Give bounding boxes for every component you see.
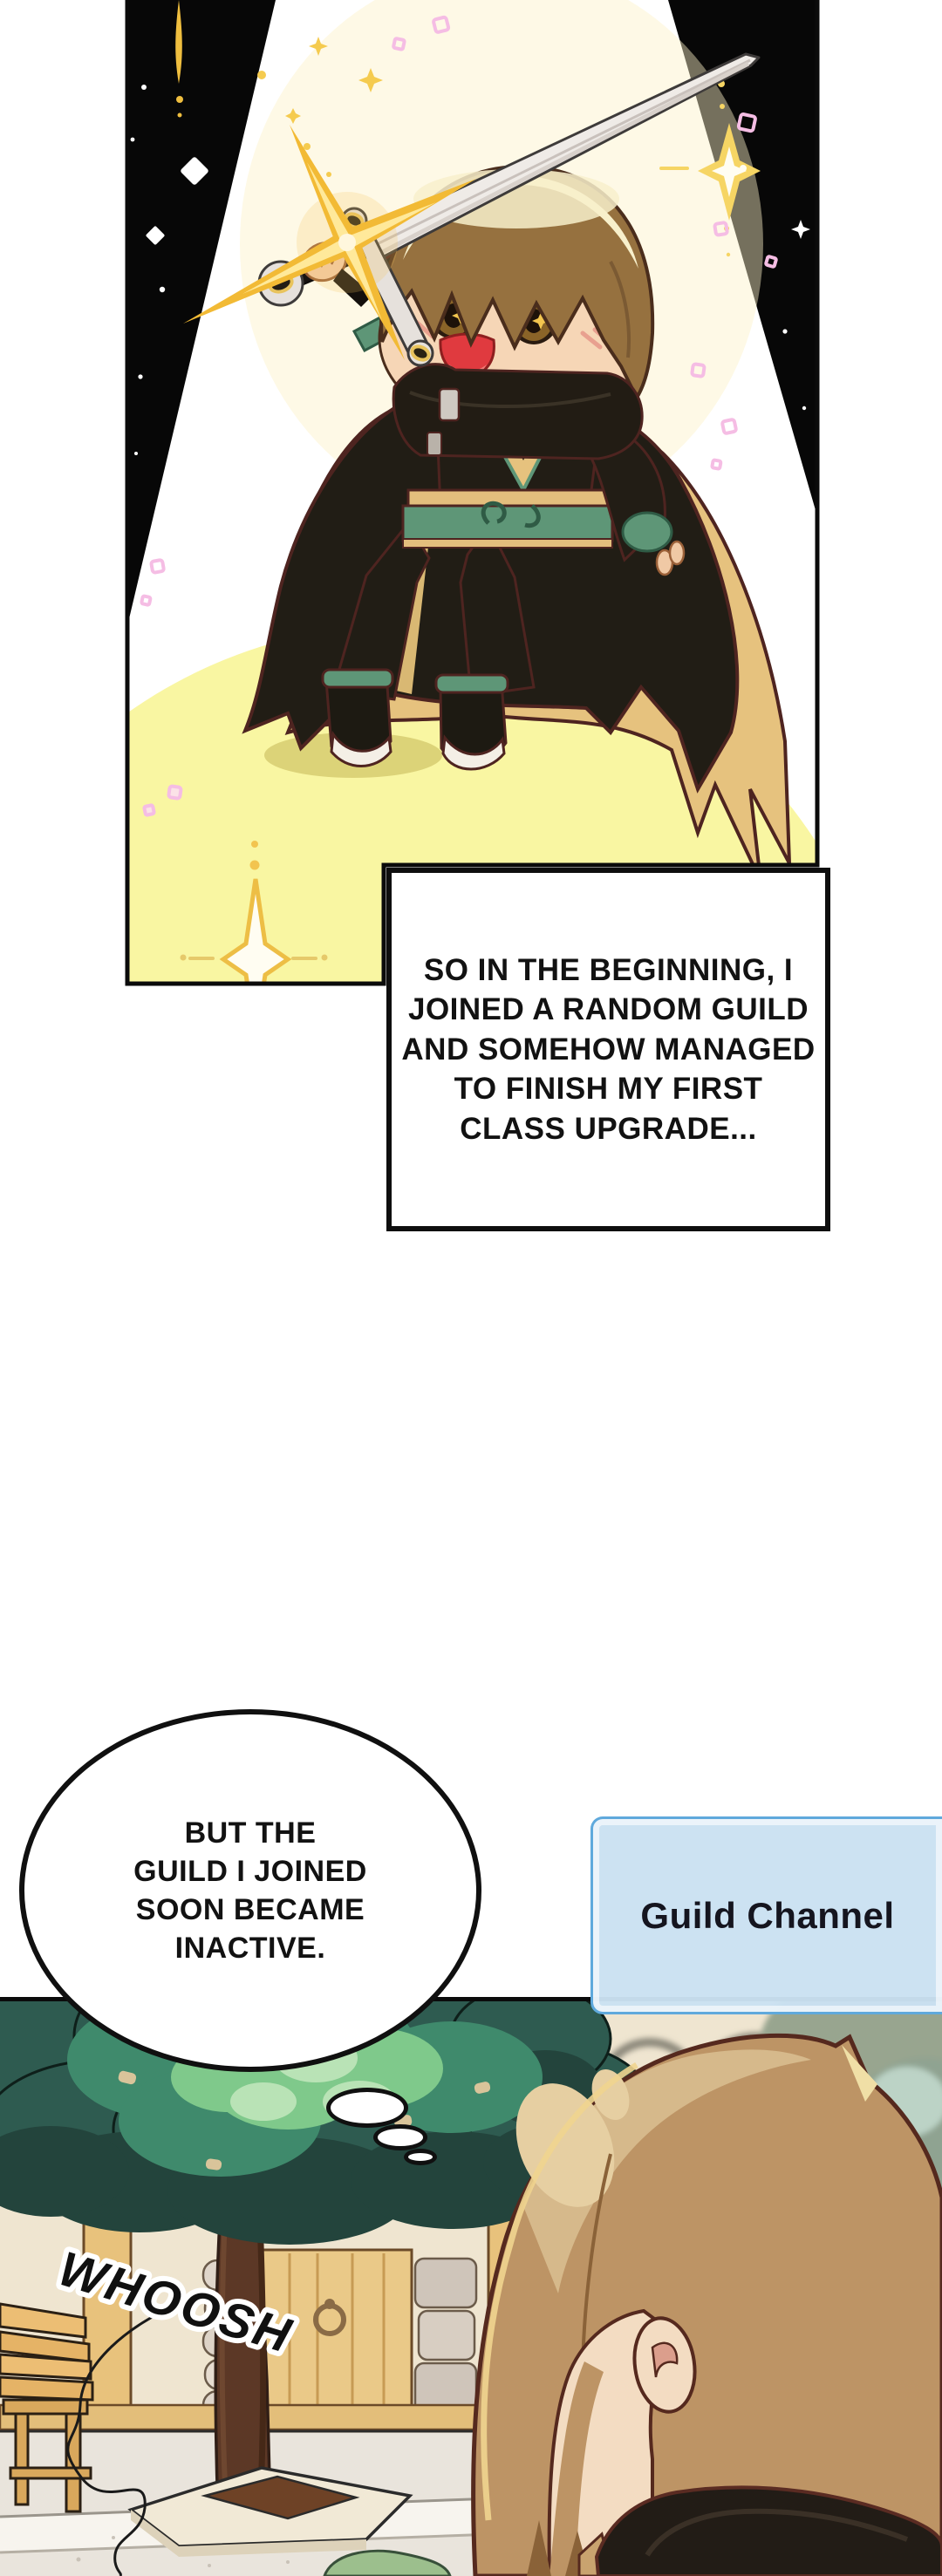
- narration-text: SO IN THE BEGINNING, I JOINED A RANDOM G…: [401, 951, 815, 1149]
- protagonist-back: [474, 2035, 942, 2576]
- thought-bubble: BUT THE GUILD I JOINED SOON BECAME INACT…: [19, 1709, 481, 2072]
- hero-scarf: [393, 365, 642, 459]
- thought-text: BUT THE GUILD I JOINED SOON BECAME INACT…: [133, 1814, 367, 1968]
- narration-box: SO IN THE BEGINNING, I JOINED A RANDOM G…: [386, 868, 830, 1231]
- guild-channel-button[interactable]: Guild Channel: [590, 1816, 942, 2014]
- thought-trail-bubble: [326, 2088, 408, 2128]
- guild-channel-label: Guild Channel: [640, 1895, 894, 1937]
- panel-street: WHOOSH: [0, 1997, 942, 2576]
- thought-trail-bubble: [404, 2149, 437, 2165]
- thought-trail-bubble: [373, 2124, 427, 2150]
- comic-page: SO IN THE BEGINNING, I JOINED A RANDOM G…: [0, 0, 942, 2576]
- stone-blocks: [415, 2259, 476, 2416]
